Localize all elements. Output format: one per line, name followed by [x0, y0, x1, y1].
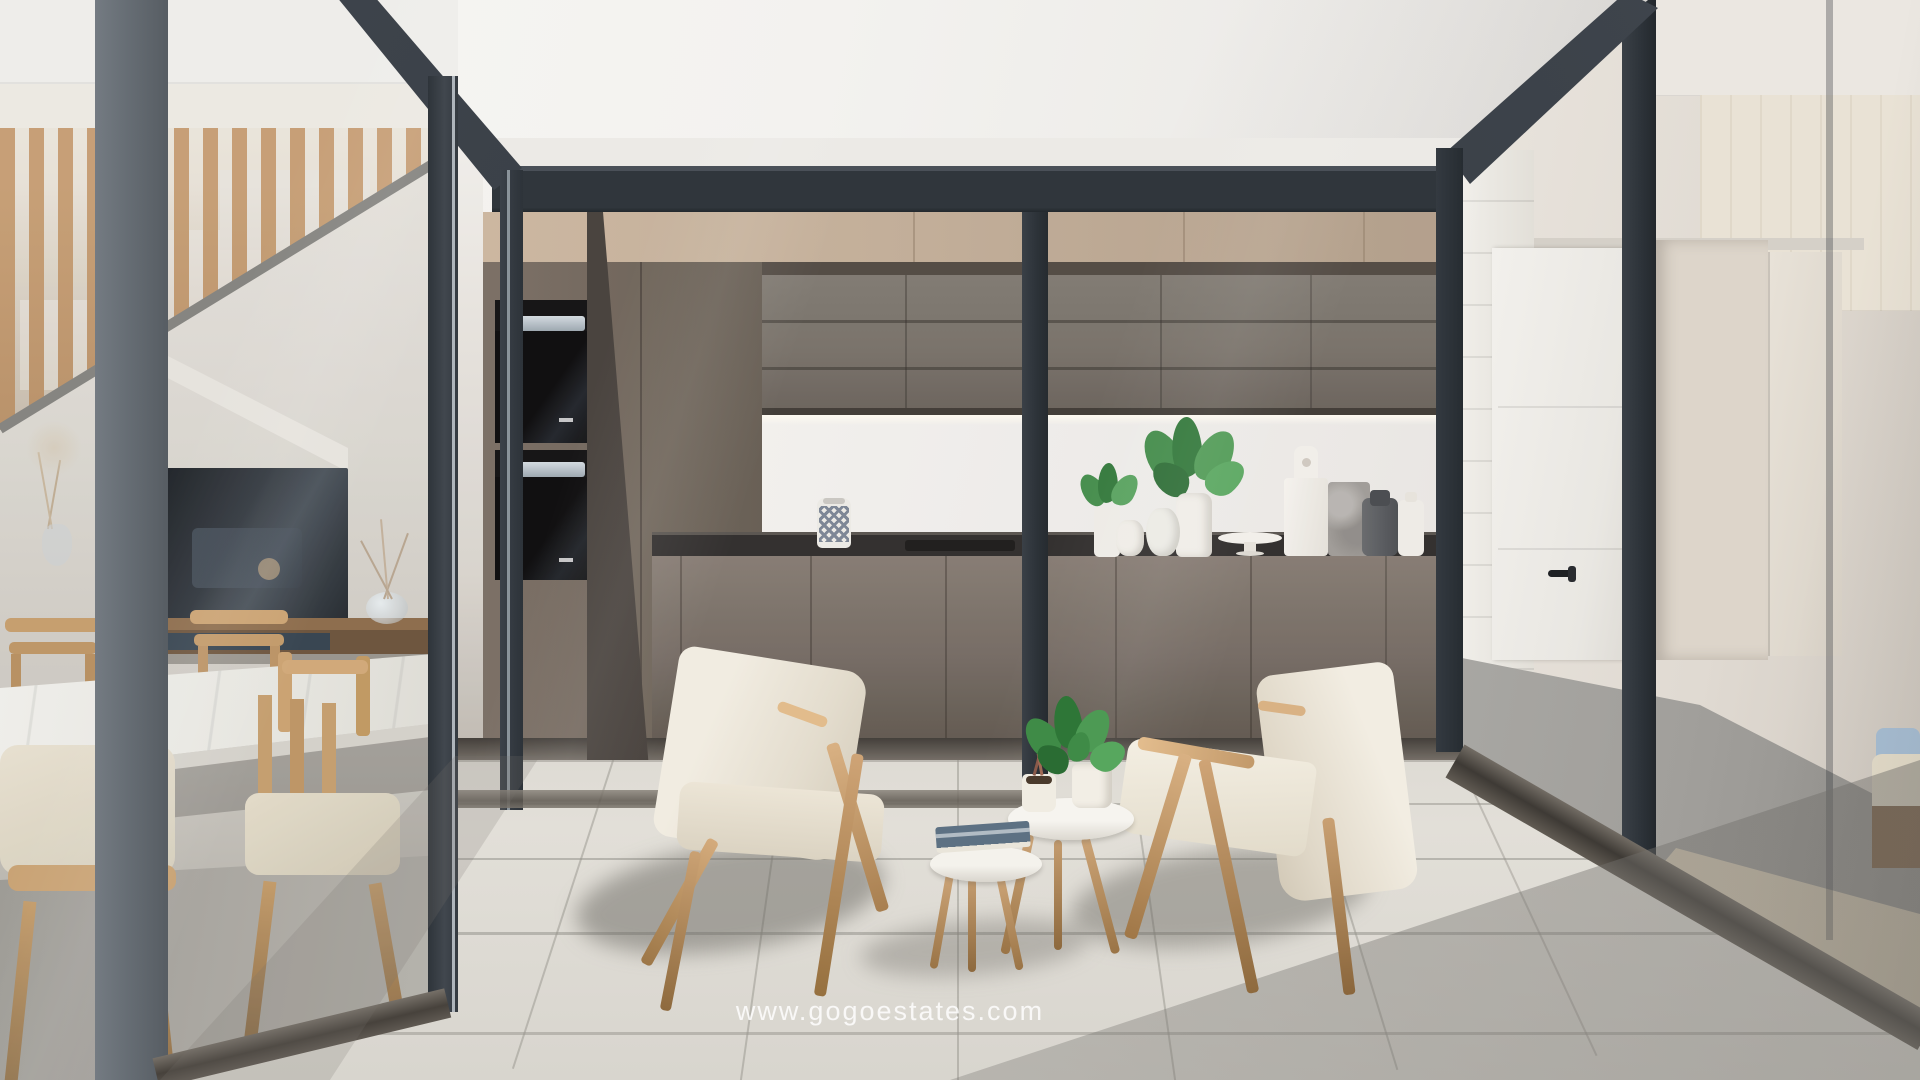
table-leg — [996, 875, 1024, 971]
table-leg — [968, 879, 976, 972]
side-table-small — [0, 0, 1920, 1080]
table-leg — [929, 873, 954, 969]
courtyard-render: www.gogoestates.com — [0, 0, 1920, 1080]
watermark: www.gogoestates.com — [700, 996, 1080, 1027]
